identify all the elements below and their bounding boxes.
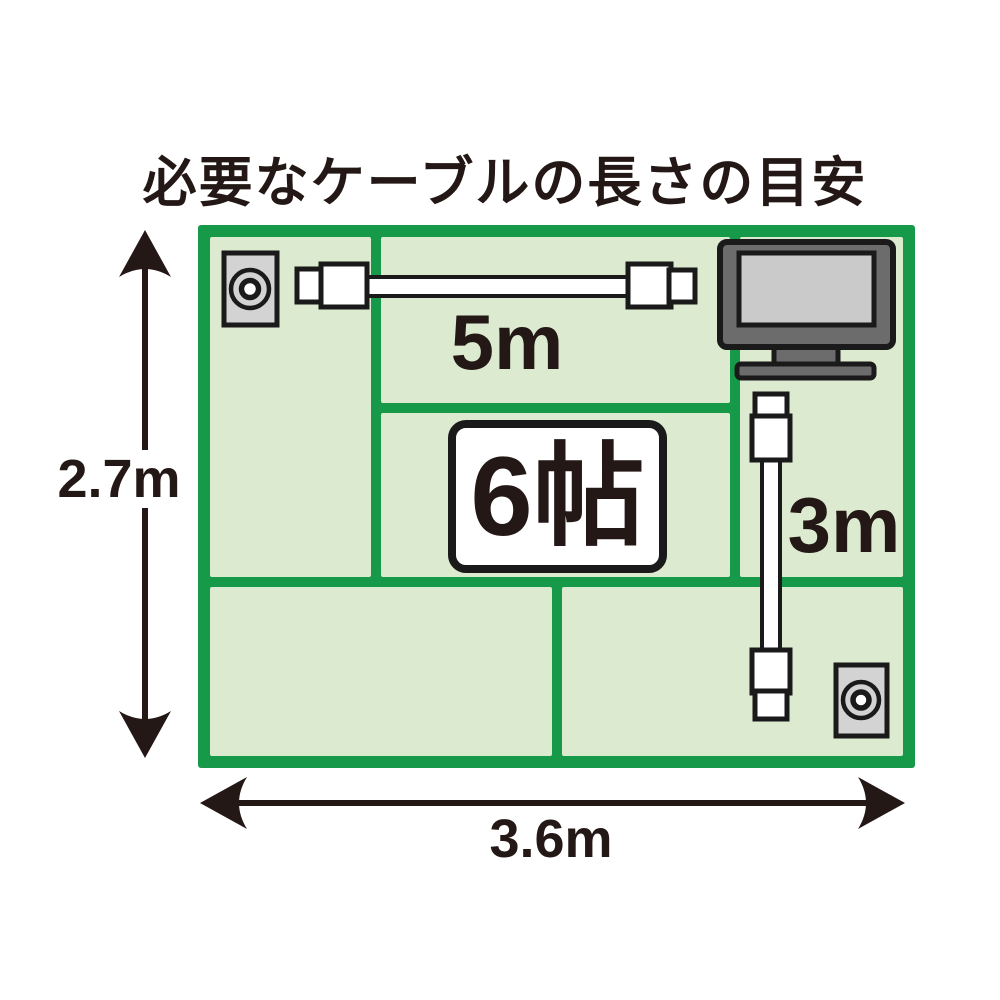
tv-icon (720, 242, 893, 378)
outlet-ring-inner (242, 281, 259, 298)
cable-length-diagram: 必要なケーブルの長さの目安 (0, 0, 1000, 1000)
room-size-badge: 6帖 (448, 420, 667, 573)
tv-stand-base (737, 364, 874, 378)
cable-3m-label: 3m (778, 486, 910, 564)
page-title: 必要なケーブルの長さの目安 (10, 138, 1000, 217)
cable-connector-body (752, 650, 790, 693)
antenna-outlet-icon (836, 665, 887, 736)
room-height-label: 2.7m (40, 452, 198, 506)
cable-tube (360, 277, 635, 296)
cable-connector-tip (755, 691, 787, 719)
cable-5m-label: 5m (437, 303, 577, 381)
cable-connector-body (628, 264, 671, 307)
cable-connector-body (321, 264, 367, 307)
room-size-label: 6帖 (470, 441, 644, 553)
antenna-outlet-icon (224, 253, 277, 325)
cable-connector-body (752, 416, 790, 460)
tv-screen (739, 253, 874, 325)
room-width-label: 3.6m (460, 812, 642, 866)
outlet-ring-inner (853, 692, 869, 708)
cable-connector-tip (669, 270, 695, 302)
